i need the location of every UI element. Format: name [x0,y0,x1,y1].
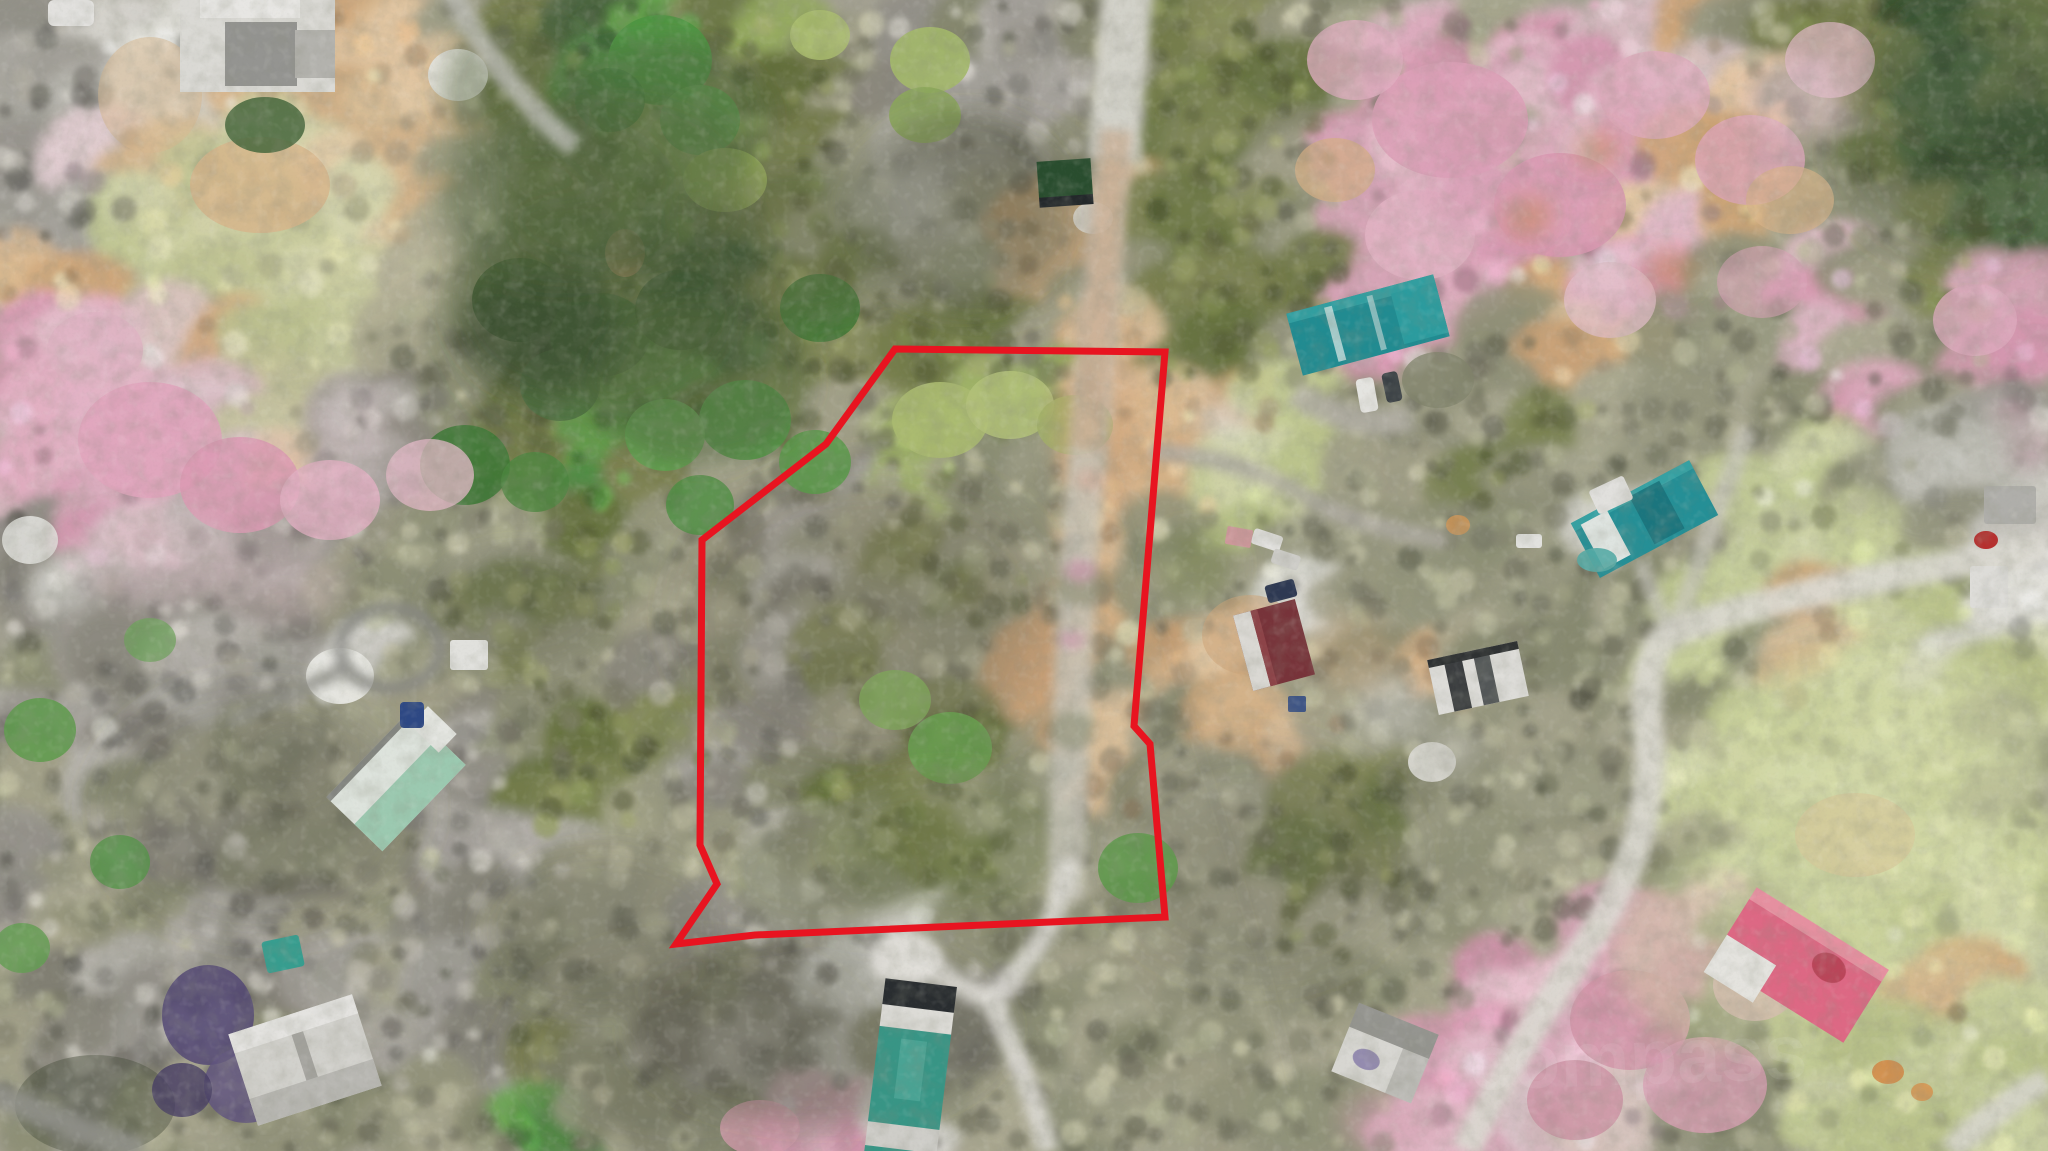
svg-text:compass: compass [1468,1007,1809,1107]
